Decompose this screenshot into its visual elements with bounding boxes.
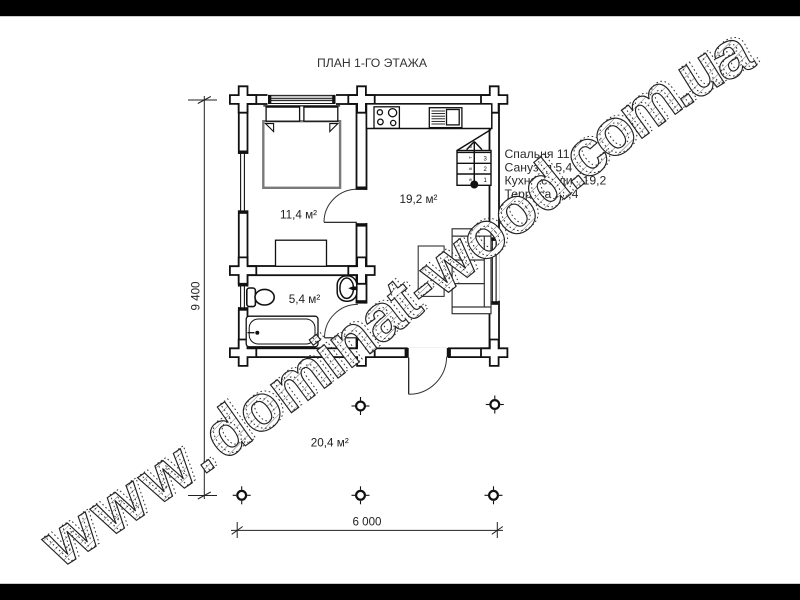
svg-text:8: 8 xyxy=(468,167,473,170)
svg-text:6 000: 6 000 xyxy=(352,516,381,529)
svg-text:9: 9 xyxy=(468,178,473,181)
svg-text:11,4 м²: 11,4 м² xyxy=(280,208,317,221)
svg-text:5,4 м²: 5,4 м² xyxy=(289,293,321,306)
svg-text:19,2 м²: 19,2 м² xyxy=(400,193,438,206)
svg-text:ПЛАН 1-ГО ЭТАЖА: ПЛАН 1-ГО ЭТАЖА xyxy=(317,56,428,70)
svg-text:6: 6 xyxy=(468,145,473,148)
svg-text:7: 7 xyxy=(468,156,473,159)
svg-text:20,4 м²: 20,4 м² xyxy=(311,436,349,449)
svg-text:9 400: 9 400 xyxy=(190,281,203,310)
